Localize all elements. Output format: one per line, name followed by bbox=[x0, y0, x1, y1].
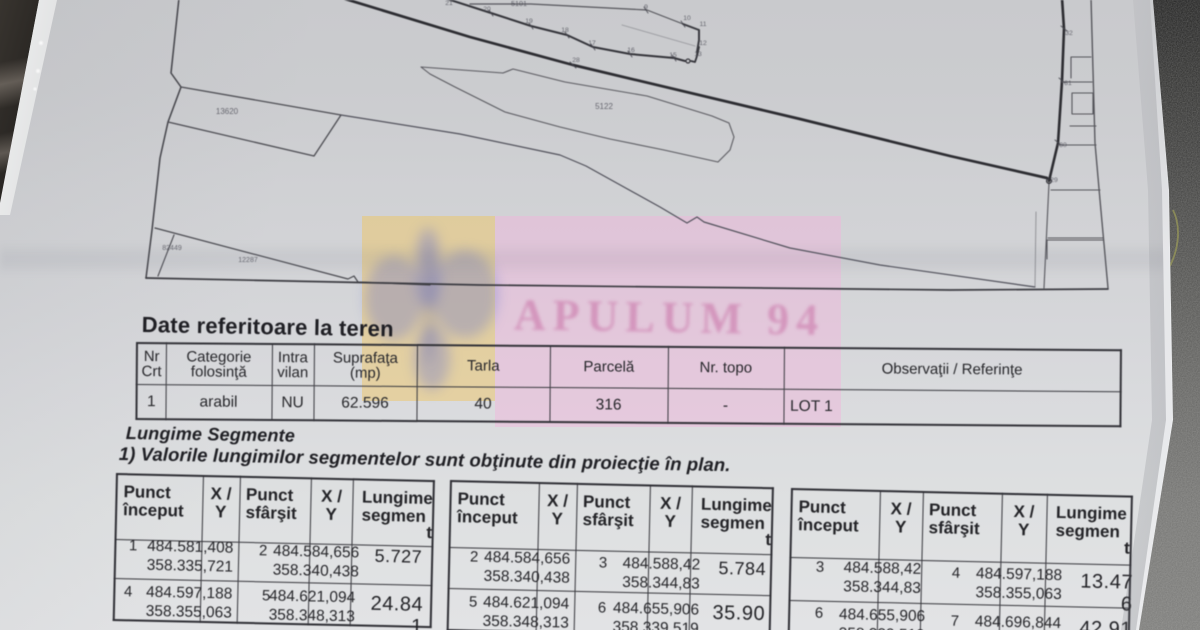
svg-text:13: 13 bbox=[694, 51, 702, 58]
svg-text:30: 30 bbox=[1059, 142, 1067, 149]
svg-text:18: 18 bbox=[561, 27, 569, 34]
svg-text:29: 29 bbox=[1050, 177, 1058, 184]
svg-text:17: 17 bbox=[588, 40, 596, 47]
svg-text:19: 19 bbox=[525, 18, 533, 25]
svg-text:12: 12 bbox=[699, 40, 707, 47]
svg-text:10: 10 bbox=[683, 15, 691, 22]
svg-text:5101: 5101 bbox=[511, 0, 527, 8]
svg-text:32: 32 bbox=[1065, 30, 1073, 37]
svg-text:13620: 13620 bbox=[216, 107, 239, 116]
svg-text:21: 21 bbox=[445, 0, 453, 7]
svg-text:28: 28 bbox=[572, 57, 580, 64]
svg-text:11: 11 bbox=[699, 21, 706, 28]
svg-text:20: 20 bbox=[483, 6, 491, 13]
svg-text:15: 15 bbox=[669, 52, 677, 59]
svg-text:5122: 5122 bbox=[595, 102, 613, 111]
svg-text:9: 9 bbox=[644, 4, 648, 11]
svg-text:31: 31 bbox=[1064, 80, 1072, 87]
svg-text:16: 16 bbox=[627, 47, 635, 54]
